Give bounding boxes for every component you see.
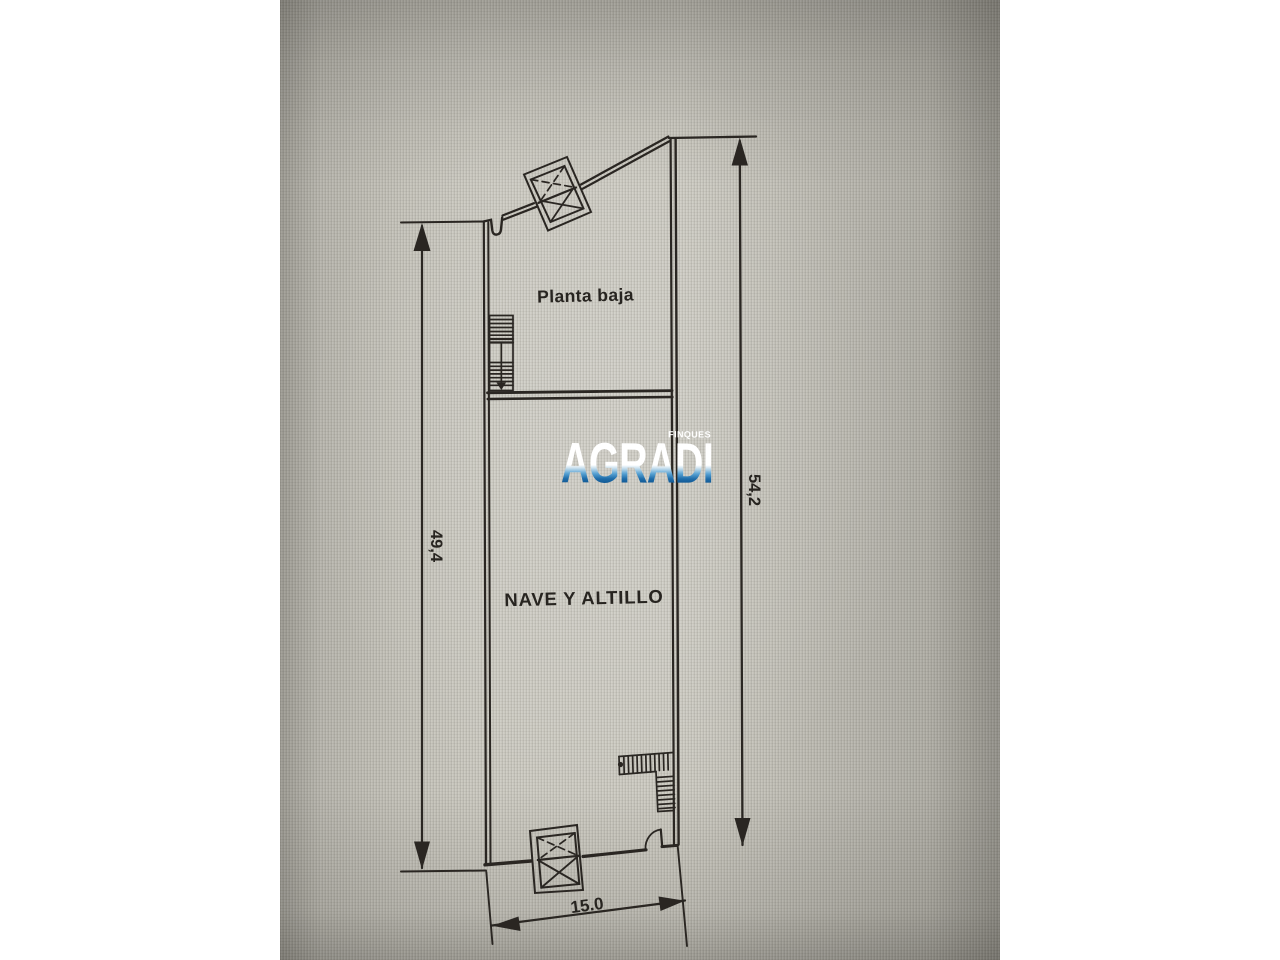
svg-text:54,2: 54,2 <box>745 474 763 506</box>
svg-text:NAVE Y ALTILLO: NAVE Y ALTILLO <box>504 586 664 611</box>
svg-text:AGRADI: AGRADI <box>561 431 713 495</box>
svg-text:49,4: 49,4 <box>427 530 445 563</box>
svg-text:Planta baja: Planta baja <box>537 284 634 306</box>
svg-text:15.0: 15.0 <box>569 894 604 917</box>
